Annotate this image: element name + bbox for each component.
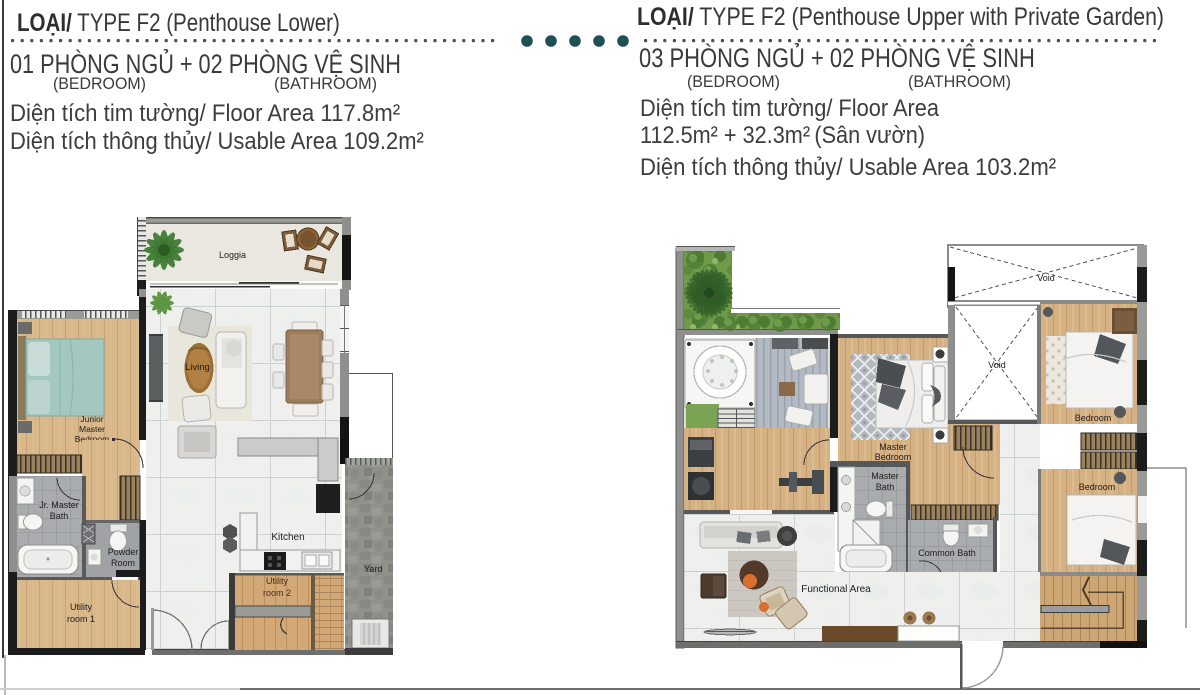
svg-text:Master: Master: [871, 471, 899, 481]
svg-text:Junior: Junior: [80, 414, 103, 424]
svg-text:Master: Master: [79, 424, 105, 434]
svg-text:Yard: Yard: [364, 564, 382, 574]
svg-text:Void: Void: [988, 360, 1006, 370]
svg-text:Bedroom: Bedroom: [1079, 482, 1116, 492]
svg-text:Utility: Utility: [266, 576, 288, 586]
svg-text:Utility: Utility: [70, 602, 92, 612]
svg-text:Bath: Bath: [50, 511, 69, 521]
svg-text:Living: Living: [185, 362, 210, 373]
svg-text:Bedroom: Bedroom: [875, 452, 912, 462]
svg-text:Loggia: Loggia: [219, 250, 246, 260]
svg-text:Common Bath: Common Bath: [918, 548, 976, 558]
svg-text:room 2: room 2: [263, 588, 291, 598]
svg-text:Jr. Master: Jr. Master: [39, 500, 79, 510]
svg-text:Bath: Bath: [876, 482, 895, 492]
svg-text:Kitchen: Kitchen: [271, 532, 304, 543]
svg-text:Powder: Powder: [108, 547, 139, 557]
svg-text:Room: Room: [111, 558, 135, 568]
svg-text:room 1: room 1: [67, 614, 95, 624]
svg-text:Master: Master: [879, 442, 907, 452]
svg-text:Functional Area: Functional Area: [801, 584, 871, 595]
svg-text:Void: Void: [1037, 273, 1055, 283]
svg-text:Bedroom: Bedroom: [1075, 413, 1112, 423]
